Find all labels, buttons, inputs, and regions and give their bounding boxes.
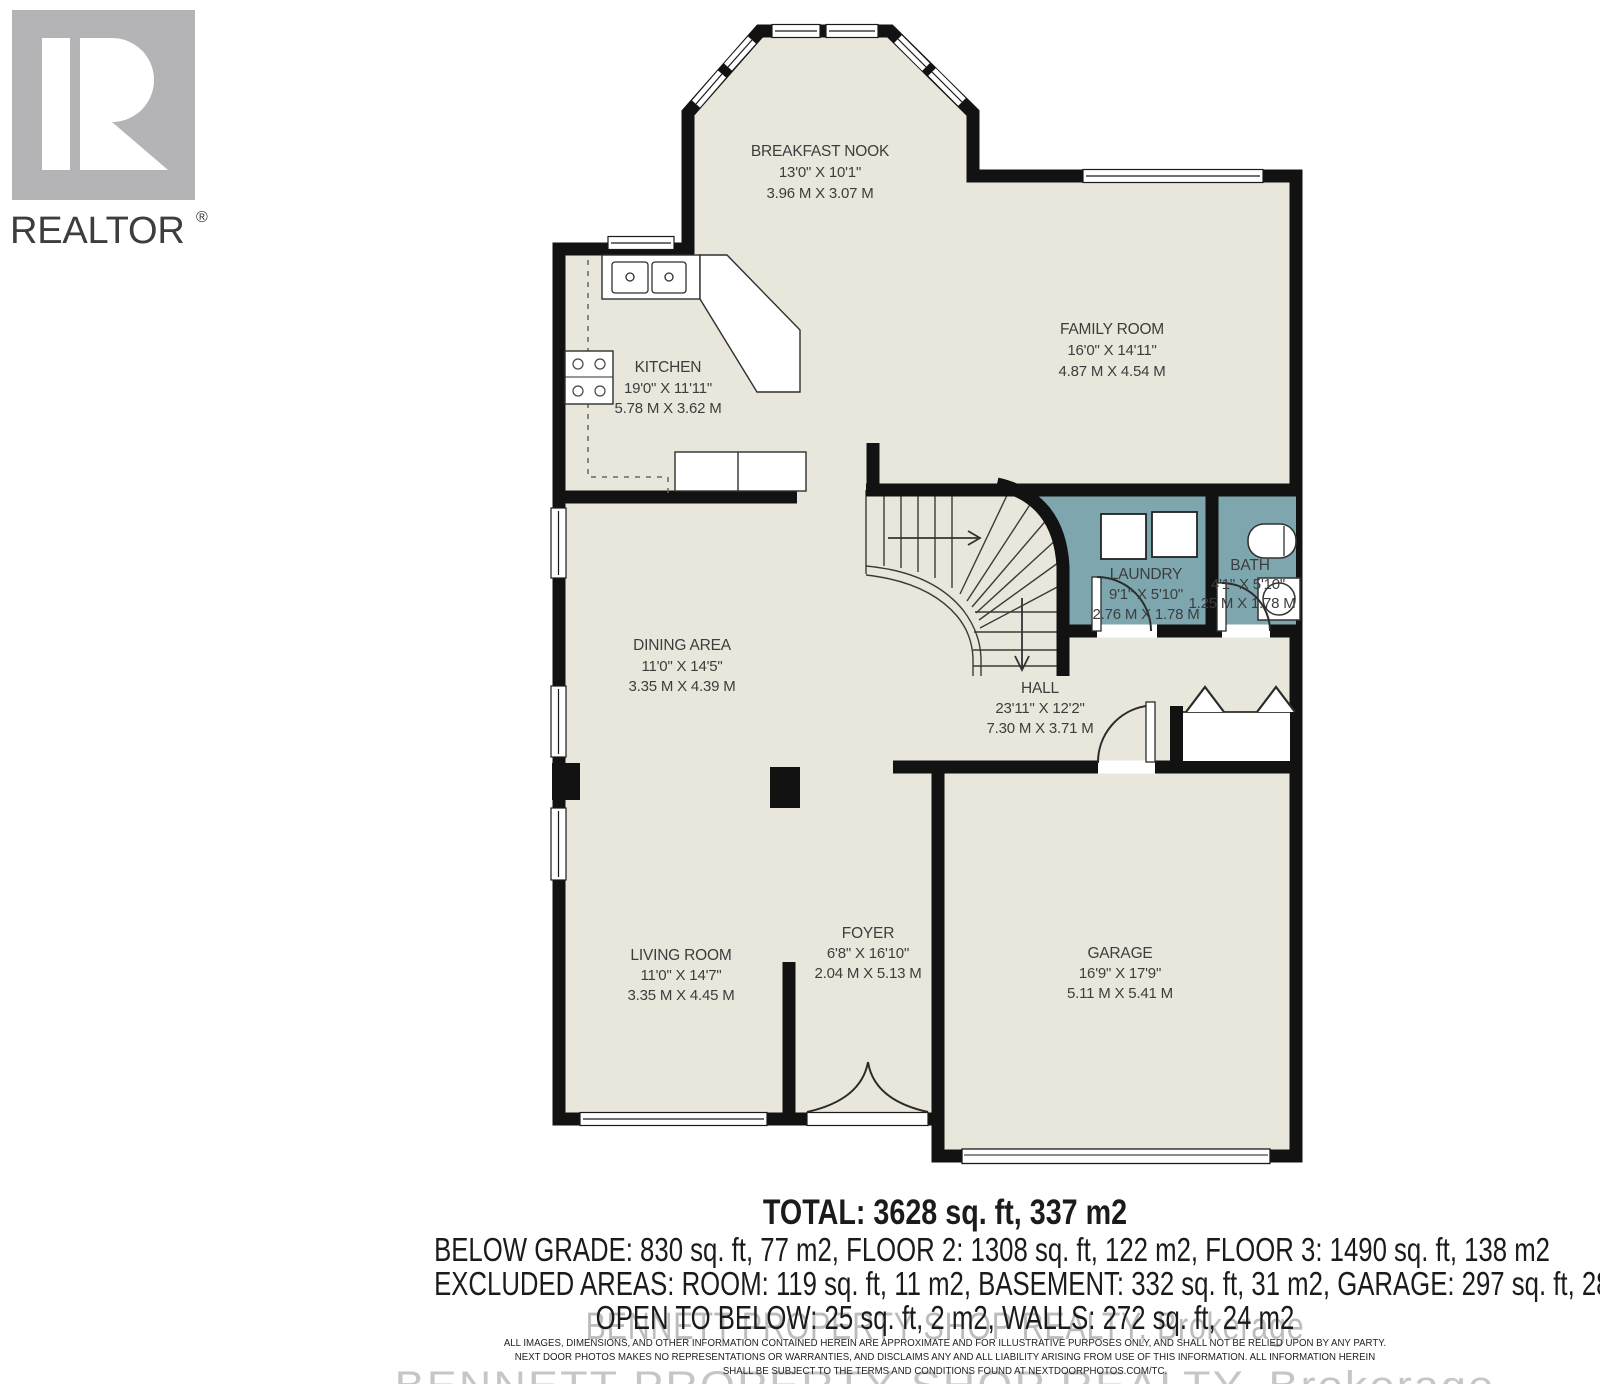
svg-text:BREAKFAST NOOK: BREAKFAST NOOK	[751, 143, 890, 160]
svg-text:3.96 M X 3.07 M: 3.96 M X 3.07 M	[766, 185, 873, 202]
excluded-areas-line: EXCLUDED AREAS: ROOM: 119 sq. ft, 11 m2,…	[434, 1265, 1456, 1303]
room-label-family-room: FAMILY ROOM 16'0" X 14'11" 4.87 M X 4.54…	[1058, 321, 1165, 380]
registered-mark: ®	[196, 209, 208, 226]
svg-text:GARAGE: GARAGE	[1087, 945, 1152, 962]
disclaimer-line-2: NEXT DOOR PHOTOS MAKES NO REPRESENTATION…	[342, 1351, 1547, 1363]
total-area-line: TOTAL: 3628 sq. ft, 337 m2	[408, 1193, 1482, 1233]
floor-plan-drawing: REALTOR ®	[0, 0, 1600, 1190]
svg-text:FAMILY ROOM: FAMILY ROOM	[1060, 321, 1164, 338]
svg-text:1.25 M X 1.78 M: 1.25 M X 1.78 M	[1188, 595, 1295, 612]
svg-text:4'1" X 5'10": 4'1" X 5'10"	[1211, 576, 1285, 593]
svg-text:5.11 M X 5.41 M: 5.11 M X 5.41 M	[1067, 985, 1173, 1002]
svg-text:23'11" X 12'2": 23'11" X 12'2"	[995, 700, 1084, 717]
svg-text:11'0" X 14'5": 11'0" X 14'5"	[641, 658, 722, 675]
svg-text:6'8" X 16'10": 6'8" X 16'10"	[827, 945, 909, 962]
svg-text:9'1" X 5'10": 9'1" X 5'10"	[1109, 586, 1183, 603]
svg-text:LAUNDRY: LAUNDRY	[1110, 566, 1182, 583]
svg-text:4.87 M X 4.54 M: 4.87 M X 4.54 M	[1058, 363, 1165, 380]
bathtub-icon	[1248, 524, 1296, 558]
svg-text:5.78 M X 3.62 M: 5.78 M X 3.62 M	[614, 400, 721, 417]
svg-text:2.76 M X 1.78 M: 2.76 M X 1.78 M	[1092, 606, 1199, 623]
svg-text:7.30 M X 3.71 M: 7.30 M X 3.71 M	[986, 720, 1093, 737]
svg-text:FOYER: FOYER	[842, 925, 894, 942]
svg-text:LIVING ROOM: LIVING ROOM	[630, 947, 731, 964]
svg-text:BATH: BATH	[1230, 557, 1269, 574]
svg-text:HALL: HALL	[1021, 680, 1060, 697]
svg-text:13'0" X 10'1": 13'0" X 10'1"	[779, 164, 861, 181]
svg-text:KITCHEN: KITCHEN	[635, 359, 702, 376]
realtor-logo: REALTOR ®	[10, 10, 208, 252]
realtor-logo-text: REALTOR	[10, 210, 185, 252]
disclaimer-line-3: SHALL BE SUBJECT TO THE TERMS AND CONDIT…	[342, 1365, 1547, 1377]
svg-text:3.35 M X 4.45 M: 3.35 M X 4.45 M	[627, 987, 734, 1004]
svg-text:DINING AREA: DINING AREA	[633, 637, 732, 654]
stairs	[866, 484, 1063, 676]
dryer-icon	[1152, 512, 1197, 557]
svg-text:2.04 M X 5.13 M: 2.04 M X 5.13 M	[814, 965, 921, 982]
svg-text:16'9" X 17'9": 16'9" X 17'9"	[1079, 965, 1161, 982]
svg-text:19'0" X 11'11": 19'0" X 11'11"	[624, 380, 712, 397]
room-label-dining-area: DINING AREA 11'0" X 14'5" 3.35 M X 4.39 …	[628, 637, 735, 695]
stove-icon	[565, 351, 613, 404]
floor-areas-line: BELOW GRADE: 830 sq. ft, 77 m2, FLOOR 2:…	[434, 1231, 1456, 1269]
fireplace-bump	[552, 763, 580, 800]
floor-plan-page: BENNETT PROPERTY SHOP REALTY, Brokerage …	[0, 0, 1600, 1384]
open-to-below-line: OPEN TO BELOW: 25 sq. ft, 2 m2, WALLS: 2…	[434, 1299, 1456, 1337]
disclaimer-line-1: ALL IMAGES, DIMENSIONS, AND OTHER INFORM…	[342, 1337, 1547, 1349]
svg-text:3.35 M X 4.39 M: 3.35 M X 4.39 M	[628, 678, 735, 695]
dining-pillar	[770, 767, 800, 808]
svg-text:16'0" X 14'11": 16'0" X 14'11"	[1067, 342, 1156, 359]
washer-icon	[1101, 514, 1146, 559]
room-label-living-room: LIVING ROOM 11'0" X 14'7" 3.35 M X 4.45 …	[627, 947, 734, 1004]
garage-overhead-door	[962, 1149, 1270, 1164]
svg-text:11'0" X 14'7": 11'0" X 14'7"	[640, 967, 721, 984]
